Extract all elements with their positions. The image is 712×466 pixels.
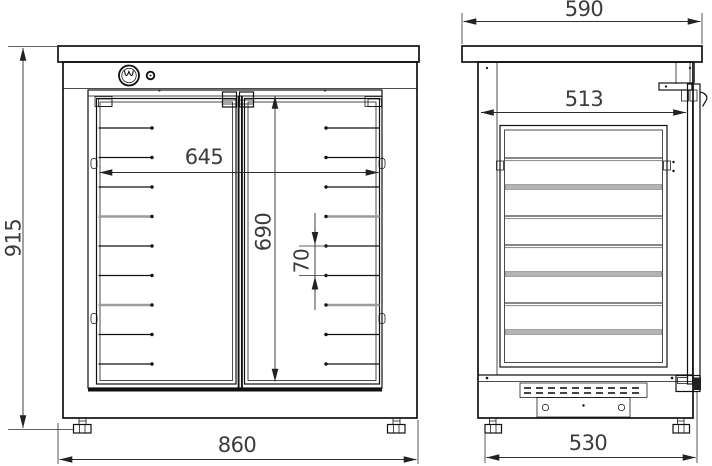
dim-overall-depth: 590 bbox=[462, 0, 702, 44]
front-door-left[interactable] bbox=[97, 99, 237, 385]
dim-label-overall-depth: 590 bbox=[565, 0, 604, 21]
front-worktop bbox=[58, 46, 419, 62]
door-mullion bbox=[239, 96, 242, 388]
side-body bbox=[478, 62, 693, 418]
front-foot-left bbox=[74, 418, 92, 433]
dim-label-opening-height: 690 bbox=[252, 213, 276, 252]
thermostat-knob-icon bbox=[119, 66, 139, 86]
dim-overall-width: 860 bbox=[58, 420, 418, 464]
front-shelf-rails-left bbox=[99, 126, 154, 365]
dim-shelf-spacing: 70 bbox=[290, 213, 329, 310]
front-shelf-rails-right bbox=[324, 126, 379, 365]
front-view: 915 645 690 70 860 bbox=[2, 46, 420, 464]
side-worktop bbox=[462, 46, 702, 62]
door-handle[interactable] bbox=[700, 92, 707, 106]
dim-interior-depth: 513 bbox=[481, 87, 686, 113]
side-base-plate bbox=[537, 398, 630, 418]
indicator-lamp-icon bbox=[147, 72, 155, 80]
dim-label-overall-width: 860 bbox=[218, 433, 257, 457]
side-shelves bbox=[505, 158, 662, 334]
dim-label-base-depth: 530 bbox=[569, 431, 608, 455]
side-door[interactable] bbox=[659, 62, 707, 392]
dim-label-interior-depth: 513 bbox=[565, 87, 604, 111]
front-door-opening bbox=[88, 90, 382, 388]
tray-shelf bbox=[505, 185, 662, 190]
side-drip-tray bbox=[520, 383, 647, 398]
side-foot-left bbox=[485, 418, 502, 433]
dim-opening-height: 690 bbox=[252, 96, 276, 382]
dim-label-opening-width: 645 bbox=[185, 145, 224, 169]
drawing-page: 915 645 690 70 860 bbox=[0, 0, 712, 466]
side-view: 590 513 530 bbox=[462, 0, 707, 463]
side-foot-right bbox=[673, 418, 690, 433]
front-foot-right bbox=[388, 418, 406, 433]
dim-label-shelf-spacing: 70 bbox=[290, 249, 314, 273]
side-tray-rack bbox=[497, 126, 671, 368]
dim-label-overall-height: 915 bbox=[2, 219, 26, 258]
tray-shelf bbox=[505, 330, 662, 335]
drawing-canvas: 915 645 690 70 860 bbox=[0, 0, 712, 466]
tray-shelf bbox=[505, 272, 662, 277]
dim-base-depth: 530 bbox=[485, 392, 697, 463]
